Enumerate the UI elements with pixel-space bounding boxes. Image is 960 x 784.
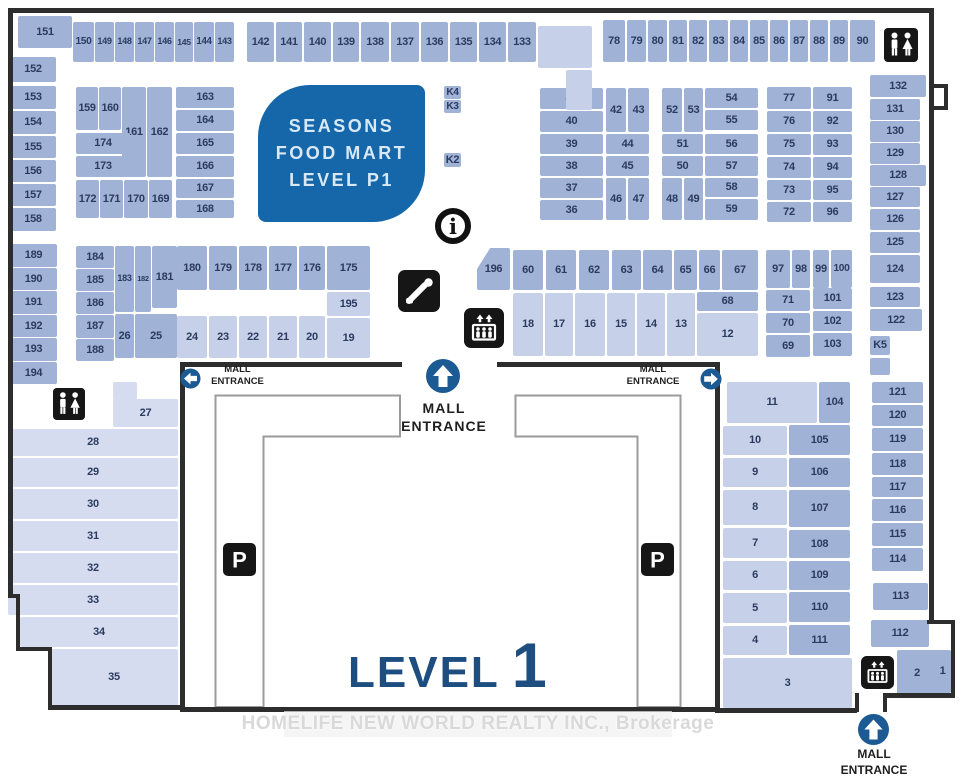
mall-entrance-label-bottom: MALL ENTRANCE [820, 747, 928, 778]
wall-segment [855, 693, 859, 712]
escalator-icon [398, 270, 440, 317]
elevator-icon [861, 655, 894, 695]
wall-segment [48, 705, 184, 710]
mall-entrance-label-center: MALL ENTRANCE [385, 399, 503, 435]
wall-segment [929, 8, 934, 622]
entrance-arrow-up-icon [858, 714, 889, 750]
level-number: 1 [512, 630, 547, 702]
svg-text:P: P [232, 548, 247, 573]
level-title: LEVEL 1 [348, 630, 547, 702]
wall-segment [180, 362, 185, 712]
mall-floorplan-map: 1511501491481471461451441431521531541551… [0, 0, 960, 784]
seasons-food-mart-area: SEASONS FOOD MART LEVEL P1 [258, 85, 425, 222]
wall-segment [16, 647, 52, 651]
wall-segment [8, 8, 934, 13]
entrance-arrow-up-icon [426, 359, 460, 398]
wall-segment [885, 693, 955, 698]
entrance-label-line: MALL [610, 364, 696, 376]
level-word: LEVEL [348, 648, 500, 698]
info-icon: i [434, 207, 472, 250]
food-mart-line: FOOD MART [276, 140, 407, 167]
wall-segment [934, 106, 948, 110]
entrance-label-line: MALL [200, 364, 275, 376]
wall-segment [715, 708, 857, 713]
entrance-label-line: MALL [385, 399, 503, 417]
svg-text:P: P [650, 548, 665, 573]
entrance-label-line: ENTRANCE [200, 376, 275, 388]
food-mart-line: LEVEL P1 [289, 167, 394, 194]
entrance-label-line: ENTRANCE [820, 763, 928, 779]
elevator-icon [464, 308, 504, 353]
entrance-label-line: MALL [820, 747, 928, 763]
restroom-icon [884, 28, 918, 67]
wall-segment [48, 647, 52, 709]
entrance-label-line: ENTRANCE [610, 376, 696, 388]
entrance-arrow-right-icon [696, 369, 722, 390]
restroom-icon [53, 388, 85, 425]
wall-segment [16, 594, 20, 651]
parking-icon: P [641, 543, 674, 581]
wall-segment [715, 362, 720, 713]
brokerage-watermark: HOMELIFE NEW WORLD REALTY INC., Brokerag… [284, 711, 672, 737]
mall-entrance-label-right: MALL ENTRANCE [610, 364, 696, 388]
mall-entrance-label-left: MALL ENTRANCE [200, 364, 275, 388]
parking-icon: P [223, 543, 256, 581]
entrance-label-line: ENTRANCE [385, 417, 503, 435]
food-mart-line: SEASONS [289, 113, 395, 140]
svg-text:i: i [449, 214, 457, 239]
wall-segment [951, 620, 955, 698]
wall-segment [8, 8, 13, 598]
